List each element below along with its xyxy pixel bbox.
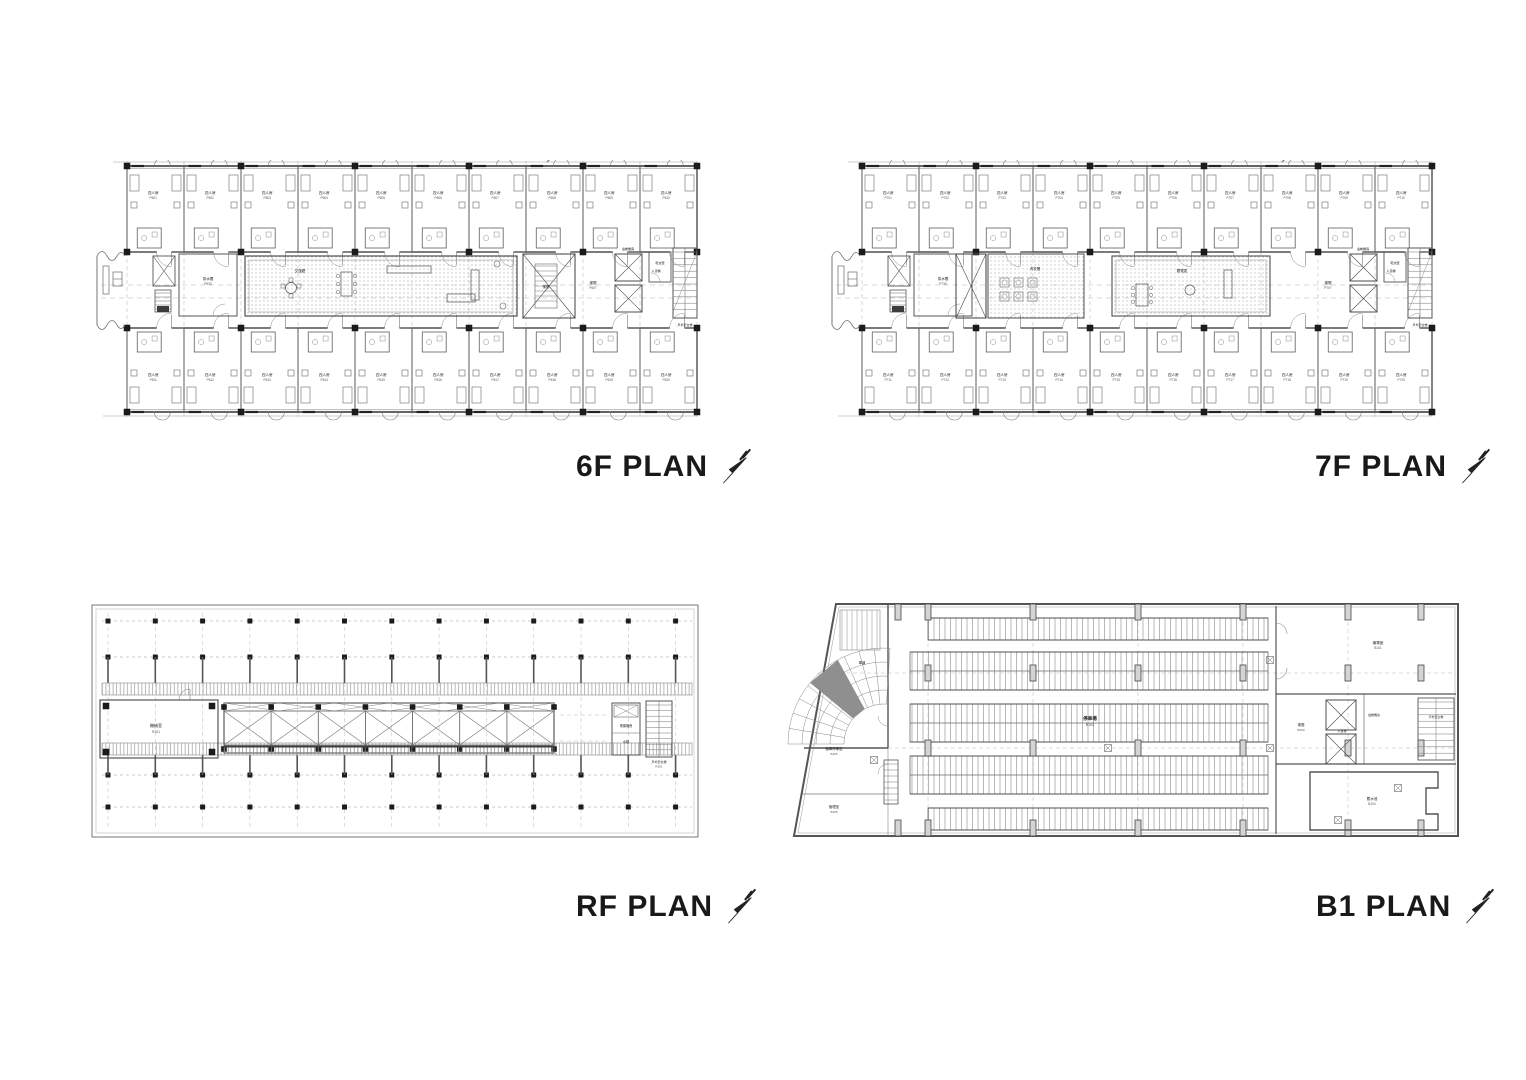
svg-text:P615: P615	[377, 378, 385, 382]
svg-text:四人房: 四人房	[1168, 190, 1179, 195]
svg-text:四人房: 四人房	[1396, 190, 1407, 195]
svg-text:P603: P603	[263, 196, 271, 200]
basement-plan-b1: 車道機車停車區B105管理室B106停車場B102機電室B101梯間B103電梯…	[778, 598, 1464, 842]
svg-text:蓄水池: 蓄水池	[1367, 796, 1378, 801]
svg-text:四人房: 四人房	[262, 372, 273, 377]
svg-text:四人房: 四人房	[1225, 372, 1236, 377]
svg-text:戶外安全梯: 戶外安全梯	[651, 759, 666, 764]
svg-text:管理室: 管理室	[829, 804, 840, 809]
svg-text:四人房: 四人房	[1054, 190, 1065, 195]
svg-text:四人房: 四人房	[940, 190, 951, 195]
svg-text:四人房: 四人房	[1168, 372, 1179, 377]
svg-text:P610: P610	[662, 196, 670, 200]
plan-title-rf-text: RF PLAN	[576, 890, 713, 924]
north-arrow-icon	[1459, 447, 1493, 487]
svg-text:人貨梯: 人貨梯	[651, 268, 660, 273]
svg-text:四人房: 四人房	[319, 372, 330, 377]
svg-text:P710: P710	[1397, 196, 1405, 200]
svg-text:四人房: 四人房	[205, 372, 216, 377]
svg-text:P704: P704	[1055, 196, 1063, 200]
svg-text:R101: R101	[152, 730, 160, 734]
svg-text:P605: P605	[377, 196, 385, 200]
svg-text:P601: P601	[149, 196, 157, 200]
svg-text:P701: P701	[884, 196, 892, 200]
svg-text:梯間: 梯間	[590, 280, 598, 285]
svg-text:P617: P617	[491, 378, 499, 382]
svg-text:P707: P707	[1324, 286, 1332, 290]
svg-text:四人房: 四人房	[1396, 372, 1407, 377]
svg-text:B105: B105	[830, 752, 837, 756]
svg-text:P630: P630	[204, 282, 212, 286]
roof-plan-rf-drawing: 機械室R101電梯機房水箱戶外安全梯R201	[90, 603, 702, 843]
svg-text:四人房: 四人房	[1339, 372, 1350, 377]
svg-text:四人房: 四人房	[376, 190, 387, 195]
svg-text:四人房: 四人房	[148, 190, 159, 195]
svg-text:P616: P616	[434, 378, 442, 382]
floor-plan-7f: 四人房P701四人房P702四人房P703四人房P704四人房P705四人房P7…	[830, 160, 1445, 422]
plan-title-6f: 6F PLAN	[576, 447, 754, 487]
svg-text:人貨梯: 人貨梯	[1386, 268, 1395, 273]
svg-text:乾衣室: 乾衣室	[1390, 260, 1399, 265]
floor-plan-6f: 四人房P601四人房P602四人房P603四人房P604四人房P605四人房P6…	[95, 160, 705, 422]
plan-title-rf: RF PLAN	[576, 887, 759, 927]
plan-title-6f-text: 6F PLAN	[576, 450, 708, 484]
svg-text:P703: P703	[998, 196, 1006, 200]
svg-text:電梯機房: 電梯機房	[620, 723, 633, 728]
svg-text:交誼廳: 交誼廳	[295, 268, 306, 273]
svg-text:電梯機房: 電梯機房	[1368, 712, 1380, 717]
svg-text:四人房: 四人房	[1225, 190, 1236, 195]
svg-text:P612: P612	[206, 378, 214, 382]
svg-text:四人房: 四人房	[262, 190, 273, 195]
svg-text:P602: P602	[206, 196, 214, 200]
svg-text:茶水間: 茶水間	[203, 276, 214, 281]
svg-text:四人房: 四人房	[205, 190, 216, 195]
svg-text:四人房: 四人房	[433, 372, 444, 377]
svg-text:P705: P705	[1112, 196, 1120, 200]
plan-title-7f-text: 7F PLAN	[1315, 450, 1447, 484]
plan-title-b1-text: B1 PLAN	[1316, 890, 1451, 924]
svg-text:P606: P606	[434, 196, 442, 200]
svg-text:機械室: 機械室	[150, 722, 162, 728]
svg-text:R201: R201	[655, 765, 663, 769]
svg-text:電梯機房: 電梯機房	[1357, 246, 1369, 251]
svg-text:B102: B102	[1086, 723, 1094, 727]
svg-text:四人房: 四人房	[883, 190, 894, 195]
north-arrow-icon	[720, 447, 754, 487]
svg-text:B104: B104	[1368, 802, 1376, 806]
svg-text:梯間: 梯間	[1325, 280, 1333, 285]
svg-text:P711: P711	[885, 378, 892, 382]
svg-text:四人房: 四人房	[1282, 372, 1293, 377]
svg-text:四人房: 四人房	[661, 190, 672, 195]
svg-text:四人房: 四人房	[604, 190, 615, 195]
roof-plan-rf: 機械室R101電梯機房水箱戶外安全梯R201	[90, 603, 702, 843]
svg-text:B103: B103	[1297, 728, 1304, 732]
svg-text:停車場: 停車場	[1083, 715, 1097, 722]
svg-text:戶外安全梯: 戶外安全梯	[677, 322, 692, 327]
svg-text:P707: P707	[1226, 196, 1234, 200]
svg-text:P620: P620	[662, 378, 670, 382]
svg-text:P611: P611	[150, 378, 157, 382]
basement-plan-b1-drawing: 車道機車停車區B105管理室B106停車場B102機電室B101梯間B103電梯…	[778, 598, 1464, 842]
svg-text:四人房: 四人房	[1054, 372, 1065, 377]
plan-title-7f: 7F PLAN	[1315, 447, 1493, 487]
svg-text:四人房: 四人房	[1111, 372, 1122, 377]
svg-text:P713: P713	[998, 378, 1006, 382]
svg-text:P609: P609	[605, 196, 613, 200]
svg-text:四人房: 四人房	[547, 372, 558, 377]
north-arrow-icon	[1463, 887, 1497, 927]
svg-text:B106: B106	[830, 810, 837, 814]
svg-text:P712: P712	[941, 378, 949, 382]
svg-text:P716: P716	[1169, 378, 1177, 382]
svg-text:水箱: 水箱	[623, 739, 630, 744]
svg-text:四人房: 四人房	[604, 372, 615, 377]
floor-plan-6f-drawing: 四人房P601四人房P602四人房P603四人房P604四人房P605四人房P6…	[95, 160, 705, 422]
svg-text:四人房: 四人房	[1282, 190, 1293, 195]
svg-text:電梯機房: 電梯機房	[622, 246, 634, 251]
svg-text:戶外安全梯: 戶外安全梯	[1412, 322, 1427, 327]
svg-text:P706: P706	[1169, 196, 1177, 200]
svg-text:四人房: 四人房	[547, 190, 558, 195]
svg-text:P714: P714	[1055, 378, 1063, 382]
drawing-sheet: { "page": { "background": "#ffffff", "li…	[0, 0, 1526, 1080]
svg-text:車道: 車道	[859, 660, 866, 665]
floor-plan-7f-drawing: 四人房P701四人房P702四人房P703四人房P704四人房P705四人房P7…	[830, 160, 1445, 422]
svg-text:茶水間: 茶水間	[938, 276, 949, 281]
svg-text:戶外安全梯: 戶外安全梯	[1429, 714, 1444, 719]
svg-text:P717: P717	[1226, 378, 1234, 382]
svg-text:P618: P618	[548, 378, 556, 382]
svg-text:B101: B101	[1374, 646, 1382, 650]
svg-text:四人房: 四人房	[661, 372, 672, 377]
svg-text:四人房: 四人房	[997, 190, 1008, 195]
svg-text:P608: P608	[548, 196, 556, 200]
svg-text:梯間: 梯間	[1298, 722, 1305, 727]
svg-text:P614: P614	[320, 378, 328, 382]
svg-text:梯間: 梯間	[543, 284, 550, 289]
svg-text:P613: P613	[263, 378, 271, 382]
svg-text:P720: P720	[1397, 378, 1405, 382]
svg-text:P607: P607	[491, 196, 499, 200]
svg-text:P708: P708	[1283, 196, 1291, 200]
svg-text:四人房: 四人房	[940, 372, 951, 377]
svg-text:四人房: 四人房	[148, 372, 159, 377]
svg-text:四人房: 四人房	[376, 372, 387, 377]
svg-text:四人房: 四人房	[1339, 190, 1350, 195]
svg-text:閱覽區: 閱覽區	[1177, 268, 1188, 273]
svg-text:四人房: 四人房	[319, 190, 330, 195]
svg-text:四人房: 四人房	[433, 190, 444, 195]
svg-text:P604: P604	[320, 196, 328, 200]
svg-text:P709: P709	[1340, 196, 1348, 200]
svg-text:四人房: 四人房	[490, 190, 501, 195]
svg-text:機車停車區: 機車停車區	[826, 746, 844, 751]
svg-text:P719: P719	[1340, 378, 1348, 382]
svg-text:四人房: 四人房	[1111, 190, 1122, 195]
svg-text:四人房: 四人房	[997, 372, 1008, 377]
svg-text:P619: P619	[605, 378, 613, 382]
svg-text:四人房: 四人房	[883, 372, 894, 377]
plan-title-b1: B1 PLAN	[1316, 887, 1497, 927]
svg-text:洗衣間: 洗衣間	[1030, 266, 1041, 271]
svg-text:P718: P718	[1283, 378, 1291, 382]
svg-text:乾衣室: 乾衣室	[655, 260, 664, 265]
svg-text:P715: P715	[1112, 378, 1120, 382]
svg-text:P730: P730	[939, 282, 947, 286]
svg-text:人貨梯: 人貨梯	[1337, 728, 1346, 733]
north-arrow-icon	[725, 887, 759, 927]
svg-text:四人房: 四人房	[490, 372, 501, 377]
svg-text:機電室: 機電室	[1373, 640, 1384, 645]
svg-text:P607: P607	[589, 286, 597, 290]
svg-text:P702: P702	[941, 196, 949, 200]
